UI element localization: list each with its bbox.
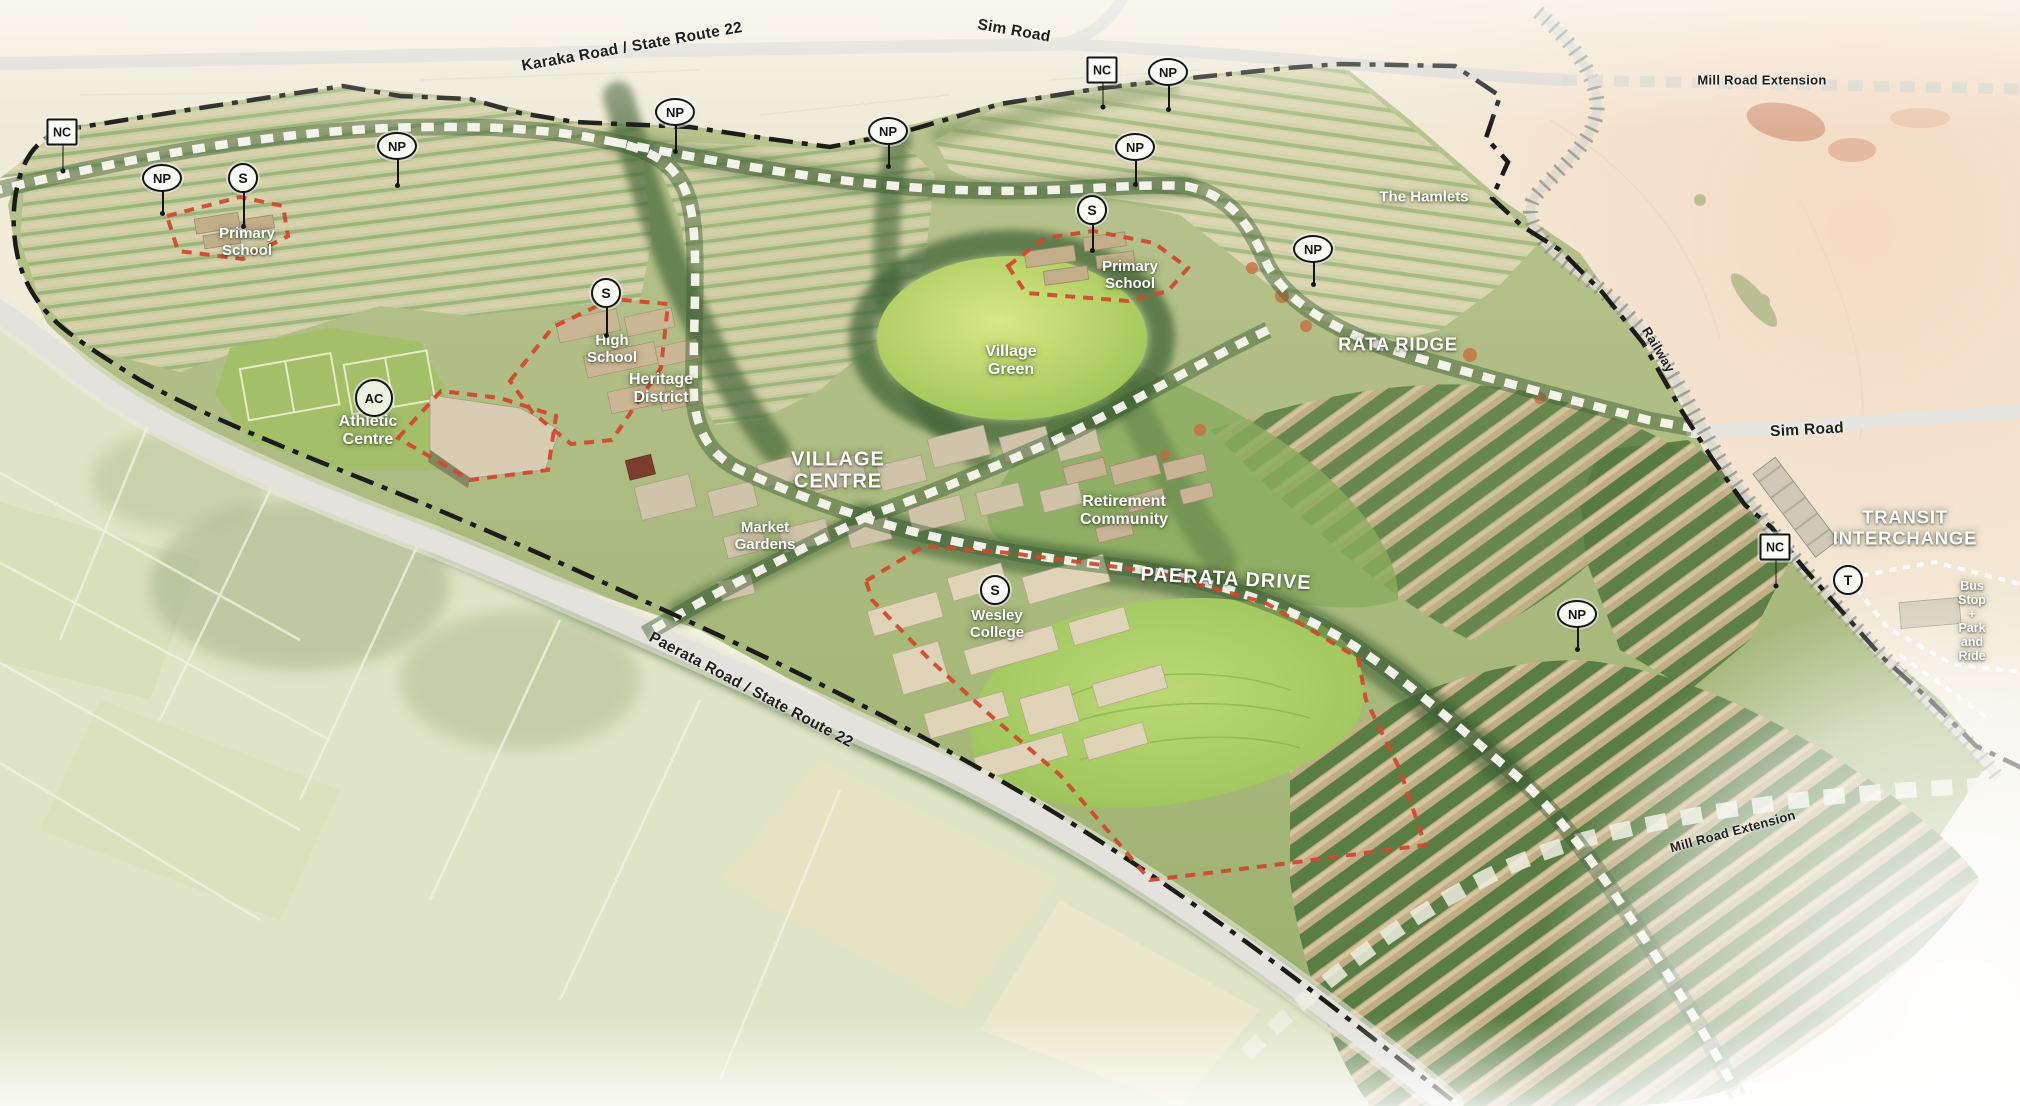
- bus-stop-label: Bus Stop + Park and Ride: [1948, 579, 1996, 663]
- badge-nc-north: NC: [1087, 57, 1118, 84]
- badge-np-4-text: NP: [879, 124, 897, 139]
- badge-np-3-leader-line: [675, 124, 677, 150]
- badge-np-rata-leader-line: [1313, 261, 1315, 283]
- market-gardens-label: Market Gardens: [735, 520, 796, 554]
- athletic-centre-label: Athletic Centre: [339, 413, 398, 449]
- high-school-label: High School: [587, 333, 637, 367]
- badge-nc-transit-leader-line: [1775, 559, 1777, 585]
- badge-np-6: NP: [1115, 133, 1155, 161]
- badge-np-1-text: NP: [153, 171, 171, 186]
- badge-nc-northwest: NC: [47, 119, 78, 146]
- wesley-college-label: Wesley College: [970, 608, 1024, 642]
- badge-s-primary-east-leader-line: [1092, 223, 1094, 249]
- mill-road-extension-top-label: Mill Road Extension: [1697, 74, 1826, 89]
- badge-np-south-leader-line: [1577, 626, 1579, 648]
- badge-s-high-school: S: [591, 278, 621, 308]
- badge-np-4: NP: [868, 117, 908, 145]
- badge-ac-text: AC: [365, 391, 384, 406]
- badge-np-5-leader-line: [1168, 84, 1170, 108]
- badge-s-primary-east: S: [1077, 195, 1107, 225]
- badge-nc-transit: NC: [1760, 534, 1791, 561]
- the-hamlets-label: The Hamlets: [1379, 190, 1468, 207]
- badge-s-high-school-leader-line: [606, 306, 608, 334]
- badge-np-6-leader-line: [1135, 159, 1137, 183]
- badge-ac: AC: [355, 379, 393, 417]
- paerata-drive-label: PAERATA DRIVE: [1140, 563, 1312, 594]
- badge-np-2-leader-line: [397, 158, 399, 184]
- transit-interchange-label: TRANSIT INTERCHANGE: [1833, 507, 1977, 548]
- badge-np-2: NP: [377, 132, 417, 160]
- badge-np-rata-text: NP: [1304, 242, 1322, 257]
- badge-nc-transit-text: NC: [1766, 540, 1784, 554]
- badge-t-transit-text: T: [1844, 572, 1853, 588]
- badge-nc-north-text: NC: [1093, 63, 1111, 77]
- badge-np-5: NP: [1148, 58, 1188, 86]
- village-centre-label: VILLAGE CENTRE: [791, 449, 885, 494]
- badge-np-1-leader-line: [162, 190, 164, 212]
- badge-np-5-text: NP: [1159, 65, 1177, 80]
- badge-np-rata: NP: [1293, 235, 1333, 263]
- railway-label: Railway: [1639, 325, 1677, 376]
- badge-s-primary-west-text: S: [238, 170, 247, 186]
- masterplan-map: Karaka Road / State Route 22Sim RoadMill…: [0, 0, 2020, 1106]
- mill-road-extension-bottom-label: Mill Road Extension: [1669, 808, 1798, 855]
- retirement-community-label: Retirement Community: [1080, 493, 1168, 529]
- heritage-district-label: Heritage District: [629, 371, 693, 407]
- badge-s-primary-east-text: S: [1087, 202, 1096, 218]
- badge-np-6-text: NP: [1126, 140, 1144, 155]
- badge-s-high-school-text: S: [601, 285, 610, 301]
- annotations-layer: Karaka Road / State Route 22Sim RoadMill…: [0, 0, 2020, 1106]
- badge-s-wesley: S: [980, 575, 1010, 605]
- badge-s-wesley-text: S: [990, 582, 999, 598]
- paerata-road-label: Paerata Road / State Route 22: [646, 629, 856, 752]
- village-green-label: Village Green: [985, 343, 1036, 379]
- primary-school-east-label: Primary School: [1102, 259, 1158, 293]
- badge-s-primary-west: S: [228, 163, 258, 193]
- badge-np-4-leader-line: [888, 143, 890, 165]
- rata-ridge-label: RATA RIDGE: [1338, 335, 1458, 356]
- badge-nc-north-leader-line: [1102, 82, 1104, 106]
- sim-road-top-label: Sim Road: [976, 16, 1052, 46]
- badge-t-transit: T: [1833, 565, 1863, 595]
- badge-np-2-text: NP: [388, 139, 406, 154]
- badge-s-primary-west-leader-line: [243, 191, 245, 225]
- badge-np-3-text: NP: [666, 105, 684, 120]
- badge-np-south: NP: [1557, 600, 1597, 628]
- primary-school-west-label: Primary School: [219, 226, 275, 260]
- badge-np-south-text: NP: [1568, 607, 1586, 622]
- badge-nc-northwest-text: NC: [53, 125, 71, 139]
- badge-np-1: NP: [142, 164, 182, 192]
- badge-nc-northwest-leader-line: [62, 144, 64, 170]
- karaka-road-label: Karaka Road / State Route 22: [520, 19, 743, 75]
- sim-road-right-label: Sim Road: [1770, 419, 1845, 440]
- badge-np-3: NP: [655, 98, 695, 126]
